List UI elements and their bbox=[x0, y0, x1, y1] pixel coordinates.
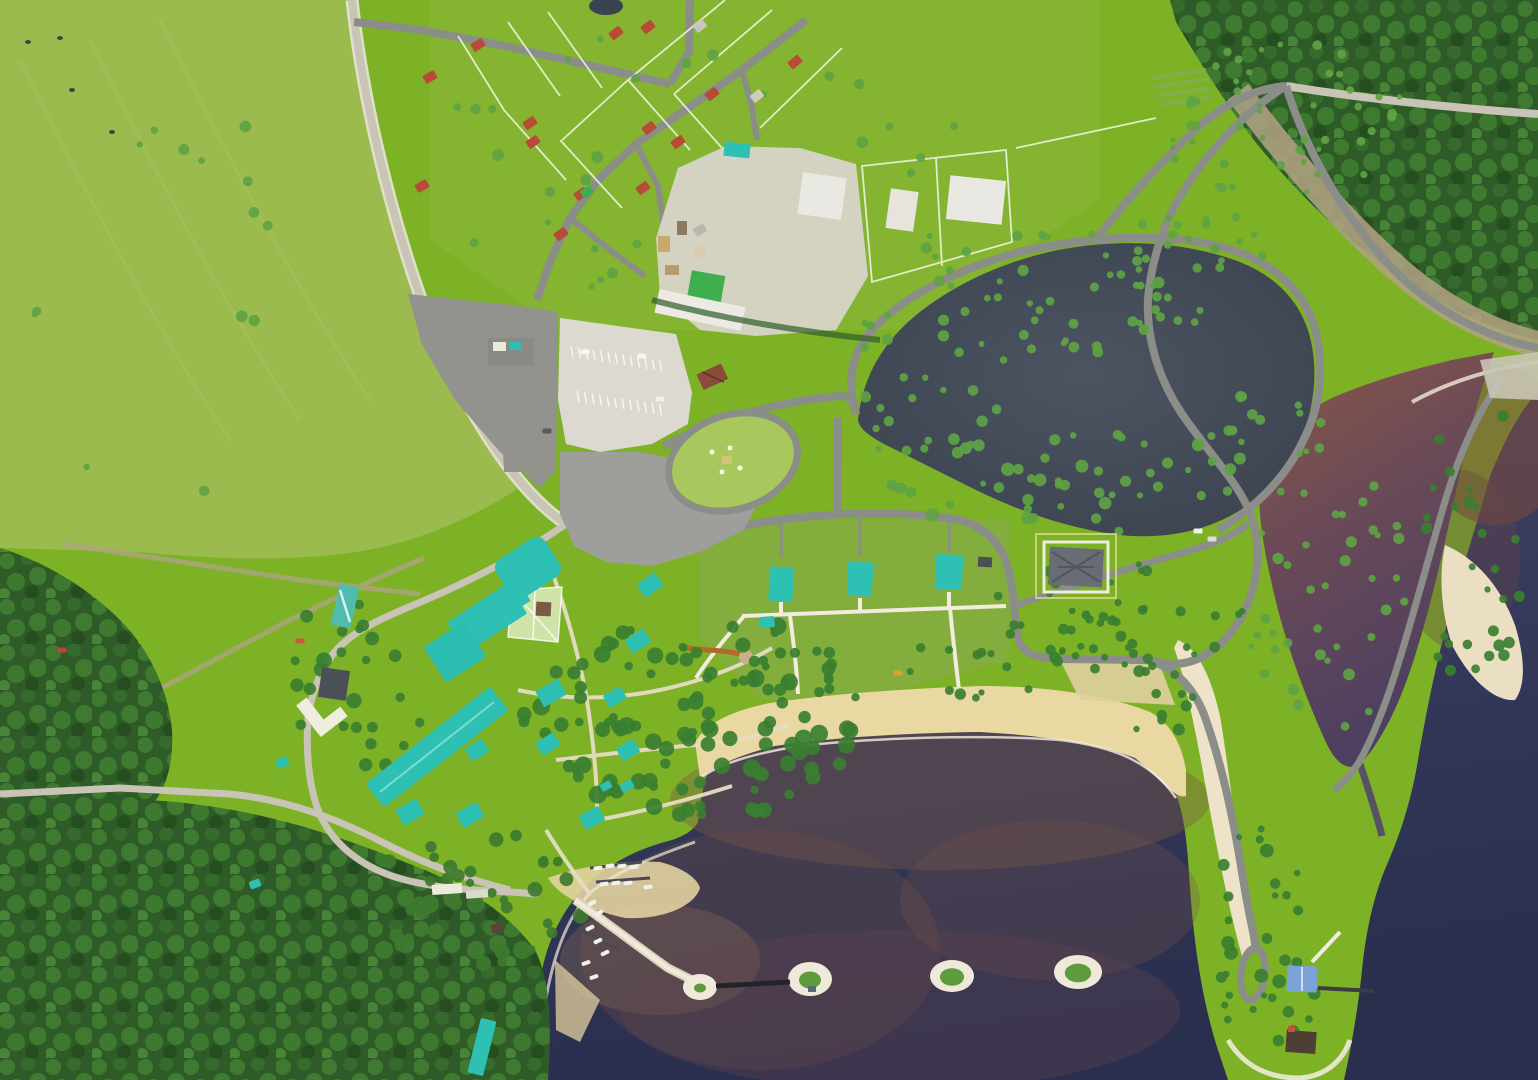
tree bbox=[1077, 643, 1084, 650]
playground-item bbox=[720, 470, 725, 475]
tree bbox=[1381, 604, 1392, 615]
tree bbox=[1133, 726, 1139, 732]
tree bbox=[647, 669, 656, 678]
tree bbox=[747, 669, 765, 687]
tree bbox=[1326, 70, 1334, 78]
lodge bbox=[847, 561, 874, 596]
tree bbox=[916, 643, 925, 652]
tree bbox=[884, 416, 894, 426]
tree bbox=[750, 786, 758, 794]
tree bbox=[680, 653, 694, 667]
tree bbox=[749, 656, 760, 667]
tree bbox=[676, 783, 688, 795]
tree bbox=[1337, 50, 1346, 59]
tree bbox=[249, 207, 260, 218]
tree bbox=[1052, 656, 1063, 667]
tree bbox=[764, 716, 776, 728]
cabin bbox=[759, 616, 775, 628]
tree bbox=[565, 56, 572, 63]
tree bbox=[948, 433, 960, 445]
tree bbox=[1393, 574, 1400, 581]
tree bbox=[1463, 640, 1473, 650]
tree bbox=[1498, 650, 1509, 661]
tree bbox=[977, 648, 986, 657]
tree bbox=[597, 36, 604, 43]
car bbox=[543, 429, 552, 434]
tree bbox=[1218, 859, 1230, 871]
playground-item bbox=[728, 446, 733, 451]
tree bbox=[994, 482, 1005, 493]
tree bbox=[1393, 522, 1402, 531]
tree bbox=[1185, 236, 1192, 243]
tree bbox=[780, 756, 796, 772]
tree bbox=[415, 718, 424, 727]
tree bbox=[1257, 103, 1262, 108]
tree bbox=[355, 625, 364, 634]
island-vegetation bbox=[799, 972, 821, 989]
tree bbox=[1115, 631, 1126, 642]
tree bbox=[1270, 878, 1281, 889]
tree bbox=[812, 647, 821, 656]
tree bbox=[950, 122, 958, 130]
tree bbox=[938, 315, 949, 326]
tree bbox=[968, 385, 979, 396]
tree bbox=[960, 307, 969, 316]
tree bbox=[1069, 342, 1080, 353]
tree bbox=[1511, 535, 1520, 544]
tree bbox=[1315, 443, 1325, 453]
aerial-photo-canvas bbox=[0, 0, 1538, 1080]
material-stack bbox=[658, 236, 670, 252]
tree bbox=[1332, 510, 1340, 518]
tree bbox=[339, 721, 349, 731]
tree bbox=[428, 924, 443, 939]
tree bbox=[553, 857, 563, 867]
tree bbox=[1090, 282, 1099, 291]
tree bbox=[1251, 231, 1258, 238]
tree bbox=[1036, 306, 1044, 314]
tree bbox=[1141, 605, 1148, 612]
tree bbox=[978, 689, 984, 695]
tree bbox=[1141, 667, 1150, 676]
tree bbox=[492, 149, 504, 161]
tree bbox=[399, 741, 409, 751]
tree bbox=[1250, 1006, 1257, 1013]
tree bbox=[1299, 149, 1305, 155]
tree bbox=[390, 928, 404, 942]
tree bbox=[694, 776, 706, 788]
tree bbox=[1223, 486, 1232, 495]
tree bbox=[1157, 710, 1168, 721]
tree bbox=[1336, 71, 1343, 78]
tree bbox=[526, 945, 536, 955]
tree bbox=[425, 841, 436, 852]
tree bbox=[759, 737, 773, 751]
tree bbox=[1283, 1006, 1295, 1018]
tree bbox=[1189, 138, 1196, 145]
tree bbox=[1358, 497, 1367, 506]
tree bbox=[1302, 541, 1309, 548]
tree bbox=[32, 307, 41, 316]
tree bbox=[872, 425, 879, 432]
tree bbox=[967, 441, 975, 449]
tree bbox=[389, 649, 402, 662]
tree bbox=[735, 638, 750, 653]
tree bbox=[1225, 916, 1233, 924]
tree bbox=[1354, 103, 1362, 111]
tree bbox=[884, 312, 891, 319]
compound-hut-teal bbox=[510, 342, 521, 350]
tree bbox=[1423, 514, 1431, 522]
tree bbox=[1272, 553, 1283, 564]
tree bbox=[487, 888, 497, 898]
tree bbox=[1191, 121, 1200, 130]
tree bbox=[945, 646, 953, 654]
tree bbox=[948, 282, 955, 289]
tree bbox=[249, 315, 260, 326]
tree bbox=[1397, 94, 1403, 100]
tree bbox=[1057, 503, 1064, 510]
tree bbox=[1006, 629, 1016, 639]
tree bbox=[510, 830, 522, 842]
tree bbox=[1070, 432, 1076, 438]
tree bbox=[1136, 561, 1142, 567]
tree bbox=[591, 151, 603, 163]
tree bbox=[660, 758, 670, 768]
tree bbox=[1301, 159, 1307, 165]
tree bbox=[1168, 230, 1177, 239]
tree bbox=[1034, 474, 1047, 487]
tree bbox=[470, 238, 479, 247]
tree bbox=[1022, 494, 1033, 505]
tree bbox=[980, 481, 986, 487]
tree bbox=[907, 668, 914, 675]
tree bbox=[771, 628, 780, 637]
warehouse bbox=[946, 175, 1006, 225]
tree bbox=[1303, 448, 1309, 454]
tree bbox=[907, 169, 915, 177]
tree bbox=[1085, 615, 1094, 624]
tree bbox=[1440, 633, 1448, 641]
tree bbox=[1136, 266, 1143, 273]
tree bbox=[470, 104, 480, 114]
tree bbox=[604, 718, 613, 727]
tree bbox=[955, 688, 966, 699]
tree bbox=[243, 176, 253, 186]
tree bbox=[927, 233, 933, 239]
tree bbox=[994, 293, 1002, 301]
tree bbox=[1293, 700, 1304, 711]
tree bbox=[1497, 410, 1509, 422]
tree bbox=[546, 927, 557, 938]
lodge bbox=[935, 554, 964, 590]
tree bbox=[1282, 891, 1291, 900]
tree bbox=[701, 737, 716, 752]
tree bbox=[1103, 252, 1109, 258]
tree bbox=[714, 758, 730, 774]
tree bbox=[1211, 611, 1220, 620]
tree bbox=[1001, 463, 1014, 476]
tree bbox=[346, 693, 361, 708]
tree bbox=[924, 437, 932, 445]
tree bbox=[1046, 645, 1056, 655]
tree bbox=[1430, 485, 1437, 492]
tree bbox=[1305, 1015, 1313, 1023]
tree bbox=[1236, 834, 1242, 840]
tree bbox=[1027, 474, 1036, 483]
tree bbox=[790, 648, 800, 658]
tree bbox=[775, 647, 786, 658]
tree bbox=[1091, 513, 1101, 523]
tree bbox=[1146, 469, 1155, 478]
tree bbox=[1232, 213, 1240, 221]
tree bbox=[666, 652, 679, 665]
tree bbox=[1178, 690, 1186, 698]
tree bbox=[1127, 639, 1137, 649]
tree bbox=[1039, 233, 1045, 239]
tree bbox=[940, 387, 946, 393]
tree bbox=[633, 240, 642, 249]
tree bbox=[645, 733, 662, 750]
tree bbox=[1271, 645, 1279, 653]
tree bbox=[1181, 700, 1192, 711]
tree bbox=[1300, 489, 1308, 497]
tree bbox=[1367, 633, 1375, 641]
tree bbox=[1236, 238, 1243, 245]
tree bbox=[1313, 624, 1322, 633]
tree bbox=[997, 278, 1003, 284]
tree bbox=[1499, 595, 1507, 603]
pond-connector-road bbox=[837, 418, 838, 516]
tree bbox=[1018, 265, 1029, 276]
car bbox=[894, 671, 903, 676]
tree bbox=[1341, 722, 1350, 731]
red-hut bbox=[1288, 1026, 1295, 1032]
tree bbox=[860, 391, 871, 402]
tree bbox=[1369, 481, 1378, 490]
tree bbox=[762, 684, 774, 696]
tree bbox=[681, 58, 691, 68]
cow bbox=[109, 130, 115, 134]
tree bbox=[1297, 451, 1303, 457]
dark-house-roof bbox=[318, 667, 350, 701]
tree bbox=[1434, 434, 1444, 444]
parking-lot bbox=[558, 318, 692, 452]
tree bbox=[1191, 318, 1199, 326]
tree bbox=[591, 245, 599, 253]
tree bbox=[1393, 533, 1404, 544]
tree bbox=[866, 321, 875, 330]
tree bbox=[1072, 652, 1080, 660]
car bbox=[608, 394, 617, 399]
tree bbox=[1260, 669, 1269, 678]
tree bbox=[83, 464, 89, 470]
tree bbox=[488, 105, 496, 113]
tree bbox=[1058, 624, 1069, 635]
tree bbox=[1171, 156, 1179, 164]
tree bbox=[1212, 62, 1220, 70]
tree bbox=[1009, 620, 1019, 630]
tree bbox=[1254, 969, 1268, 983]
tree bbox=[1258, 252, 1266, 260]
tree bbox=[1257, 108, 1263, 114]
tree bbox=[517, 707, 532, 722]
tree bbox=[1162, 458, 1173, 469]
tree bbox=[892, 483, 901, 492]
tree bbox=[1142, 255, 1150, 263]
tree bbox=[1069, 319, 1079, 329]
tree bbox=[1387, 112, 1397, 122]
tree bbox=[1376, 93, 1383, 100]
island-vegetation bbox=[694, 983, 706, 992]
tree bbox=[545, 219, 551, 225]
tree bbox=[290, 678, 303, 691]
tree bbox=[1117, 433, 1125, 441]
tree bbox=[753, 770, 763, 780]
tree bbox=[1138, 220, 1147, 229]
tree bbox=[1189, 693, 1197, 701]
tree bbox=[1141, 565, 1152, 576]
tree bbox=[624, 662, 633, 671]
tree bbox=[576, 658, 588, 670]
tree bbox=[1089, 644, 1098, 653]
tree bbox=[756, 802, 772, 818]
tree bbox=[851, 693, 859, 701]
cow bbox=[69, 88, 75, 92]
tree bbox=[236, 310, 248, 322]
tree bbox=[1246, 69, 1252, 75]
tree bbox=[1478, 529, 1487, 538]
tree bbox=[1164, 241, 1172, 249]
tree bbox=[1132, 256, 1142, 266]
tree bbox=[860, 343, 869, 352]
tree bbox=[833, 757, 846, 770]
tree bbox=[810, 725, 828, 743]
tree bbox=[1134, 246, 1143, 255]
tree bbox=[1101, 654, 1108, 661]
tree bbox=[1484, 651, 1494, 661]
tree bbox=[1295, 402, 1302, 409]
tree bbox=[351, 722, 362, 733]
playground-item bbox=[722, 456, 732, 464]
tree bbox=[580, 174, 591, 185]
tree bbox=[1186, 101, 1194, 109]
tree bbox=[1210, 244, 1220, 254]
tree bbox=[945, 686, 954, 695]
tree bbox=[1192, 439, 1205, 452]
tree bbox=[938, 330, 949, 341]
tree bbox=[759, 656, 769, 666]
material-stack bbox=[694, 246, 706, 258]
tree bbox=[404, 933, 413, 942]
tree bbox=[1099, 497, 1112, 510]
tree bbox=[1170, 137, 1176, 143]
tree bbox=[539, 856, 548, 865]
tree bbox=[926, 508, 939, 521]
tree bbox=[1277, 488, 1285, 496]
tree bbox=[597, 277, 604, 284]
tree bbox=[367, 722, 378, 733]
car bbox=[638, 354, 647, 359]
tree bbox=[1002, 662, 1011, 671]
tree bbox=[489, 832, 503, 846]
dark-pad bbox=[978, 557, 993, 568]
tree bbox=[1141, 440, 1148, 447]
tree bbox=[1120, 476, 1131, 487]
tree bbox=[497, 957, 507, 967]
tree bbox=[589, 283, 595, 289]
tree bbox=[452, 869, 465, 882]
tree bbox=[798, 711, 810, 723]
island-vegetation bbox=[940, 968, 964, 986]
tree bbox=[198, 157, 205, 164]
tree bbox=[824, 647, 836, 659]
tree bbox=[1185, 467, 1191, 473]
tree bbox=[1133, 282, 1140, 289]
tree bbox=[1269, 630, 1276, 637]
tree bbox=[1451, 503, 1459, 511]
tree bbox=[1484, 586, 1490, 592]
tree bbox=[1151, 305, 1160, 314]
tree bbox=[1223, 48, 1231, 56]
tree bbox=[337, 626, 348, 637]
tree bbox=[1261, 614, 1271, 624]
tree bbox=[1234, 87, 1242, 95]
tree bbox=[1471, 664, 1480, 673]
tree bbox=[151, 127, 158, 134]
tree bbox=[647, 647, 663, 663]
tree bbox=[1357, 137, 1366, 146]
tree bbox=[382, 854, 396, 868]
tree bbox=[1248, 643, 1254, 649]
tree bbox=[1365, 708, 1373, 716]
tree bbox=[707, 49, 718, 60]
island-vegetation bbox=[1065, 964, 1091, 983]
tree bbox=[946, 500, 955, 509]
tree bbox=[1208, 457, 1217, 466]
tree bbox=[1340, 555, 1351, 566]
tree bbox=[240, 121, 252, 133]
tree bbox=[1469, 563, 1476, 570]
tree bbox=[1346, 536, 1357, 547]
tree bbox=[359, 758, 372, 771]
tree bbox=[574, 691, 587, 704]
tree bbox=[824, 671, 833, 680]
playground-item bbox=[710, 450, 715, 455]
tree bbox=[300, 610, 313, 623]
tree bbox=[1040, 453, 1049, 462]
tree bbox=[838, 736, 855, 753]
tree bbox=[1258, 826, 1265, 833]
tree bbox=[1183, 643, 1191, 651]
tree bbox=[1400, 597, 1408, 605]
tree bbox=[1170, 145, 1175, 150]
tree bbox=[1375, 532, 1381, 538]
tree bbox=[429, 852, 439, 862]
cow bbox=[25, 40, 31, 44]
tree bbox=[1261, 992, 1267, 998]
tree bbox=[784, 790, 794, 800]
tree bbox=[1176, 606, 1186, 616]
tree bbox=[1315, 171, 1321, 177]
tree bbox=[922, 375, 928, 381]
tree bbox=[961, 247, 971, 257]
tree bbox=[805, 740, 820, 755]
tree bbox=[1233, 78, 1239, 84]
tree bbox=[900, 373, 909, 382]
tree bbox=[1236, 123, 1244, 131]
tree bbox=[1224, 463, 1236, 475]
